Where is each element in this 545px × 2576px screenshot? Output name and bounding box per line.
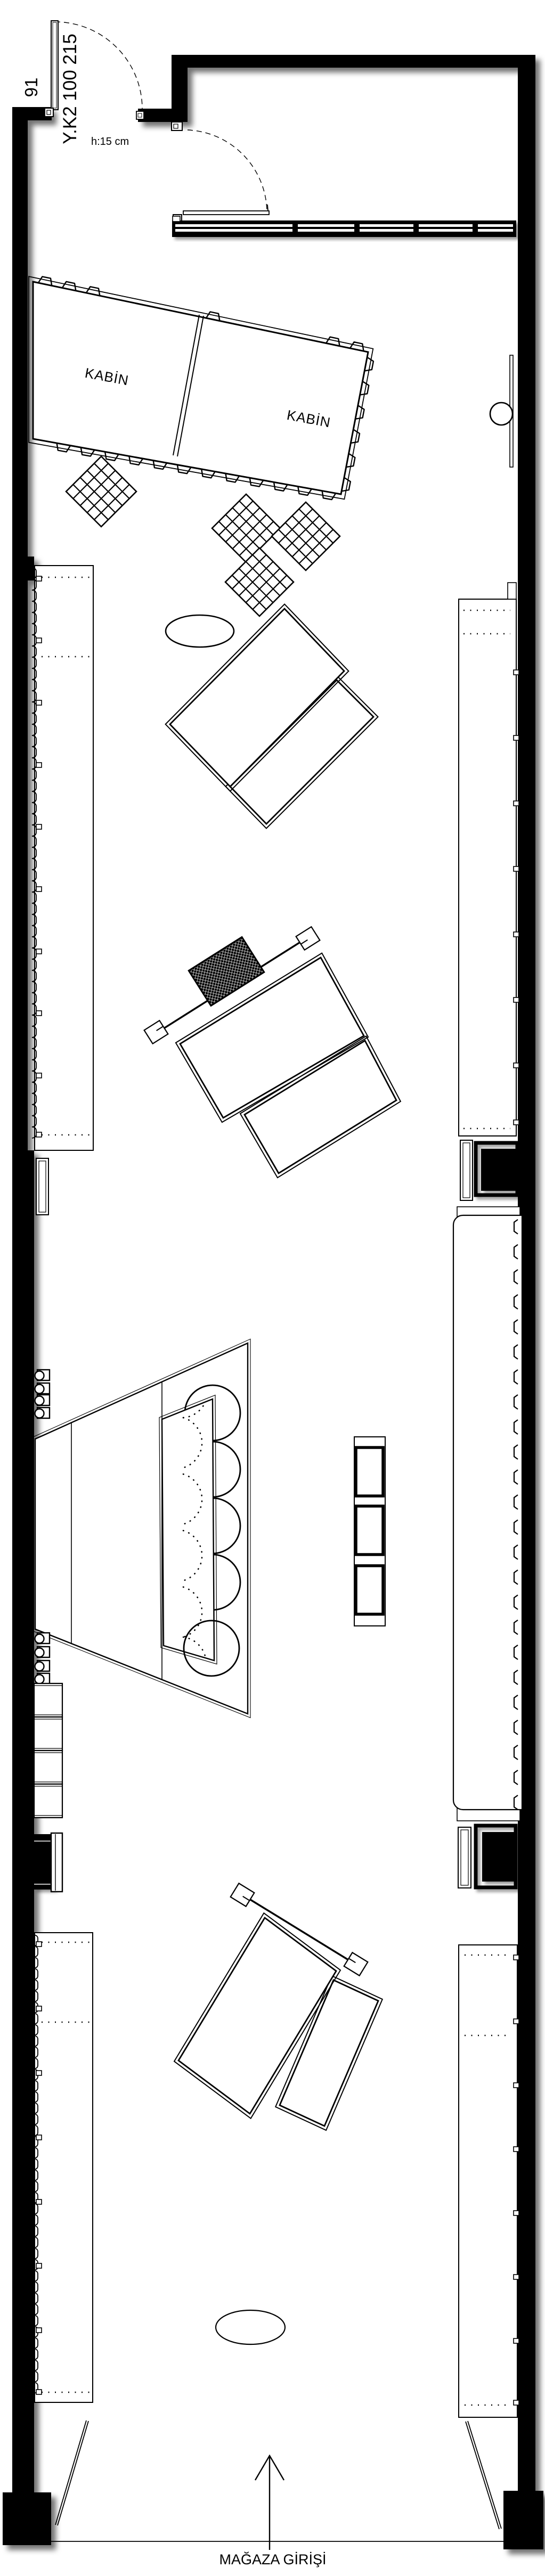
svg-text:MAĞAZA GİRİŞİ: MAĞAZA GİRİŞİ <box>219 2551 326 2567</box>
svg-text:91: 91 <box>21 78 41 97</box>
svg-text:Y.K2 100 215: Y.K2 100 215 <box>60 34 80 144</box>
svg-text:h:15 cm: h:15 cm <box>91 136 129 148</box>
